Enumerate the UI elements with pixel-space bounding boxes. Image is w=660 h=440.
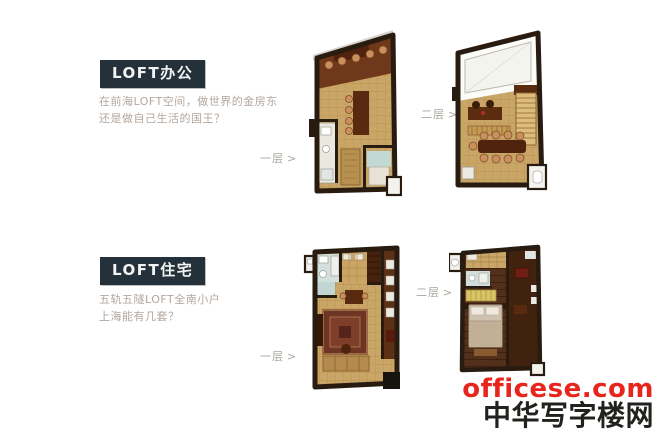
chevron-right-icon: > (287, 350, 297, 363)
watermark-brand-name: 中华写字楼网 (462, 402, 654, 430)
floorplan-residence-level2 (449, 241, 546, 381)
caption-residence-level2: 二层> (416, 284, 453, 300)
tagline-line: 在前海LOFT空间，做世界的金房东 (99, 93, 278, 110)
tagline-line: 还是做自己生活的国王？ (99, 110, 278, 127)
floorplan-office-level1 (305, 27, 402, 199)
caption-residence-level1: 一层> (260, 348, 297, 364)
tagline-line: 上海能有几套？ (99, 308, 220, 325)
tagline-residence: 五轨五隧LOFT全南小户 上海能有几套？ (99, 291, 220, 325)
badge-label: LOFT办公 (112, 64, 193, 82)
badge-label: LOFT住宅 (112, 261, 193, 279)
tagline-office: 在前海LOFT空间，做世界的金房东 还是做自己生活的国王？ (99, 93, 278, 127)
caption-office-level1: 一层> (260, 150, 297, 166)
floor-label: 一层 (260, 152, 284, 165)
section-badge-loft-residence: LOFT住宅 (100, 257, 205, 285)
floor-label: 二层 (421, 108, 445, 121)
chevron-right-icon: > (287, 152, 297, 165)
floorplan-office-level2 (452, 27, 549, 195)
floor-label: 二层 (416, 286, 440, 299)
floorplan-residence-level1 (303, 244, 402, 394)
floor-label: 一层 (260, 350, 284, 363)
section-badge-loft-office: LOFT办公 (100, 60, 205, 88)
tagline-line: 五轨五隧LOFT全南小户 (99, 291, 220, 308)
watermark: officese.com 中华写字楼网 (462, 376, 654, 430)
